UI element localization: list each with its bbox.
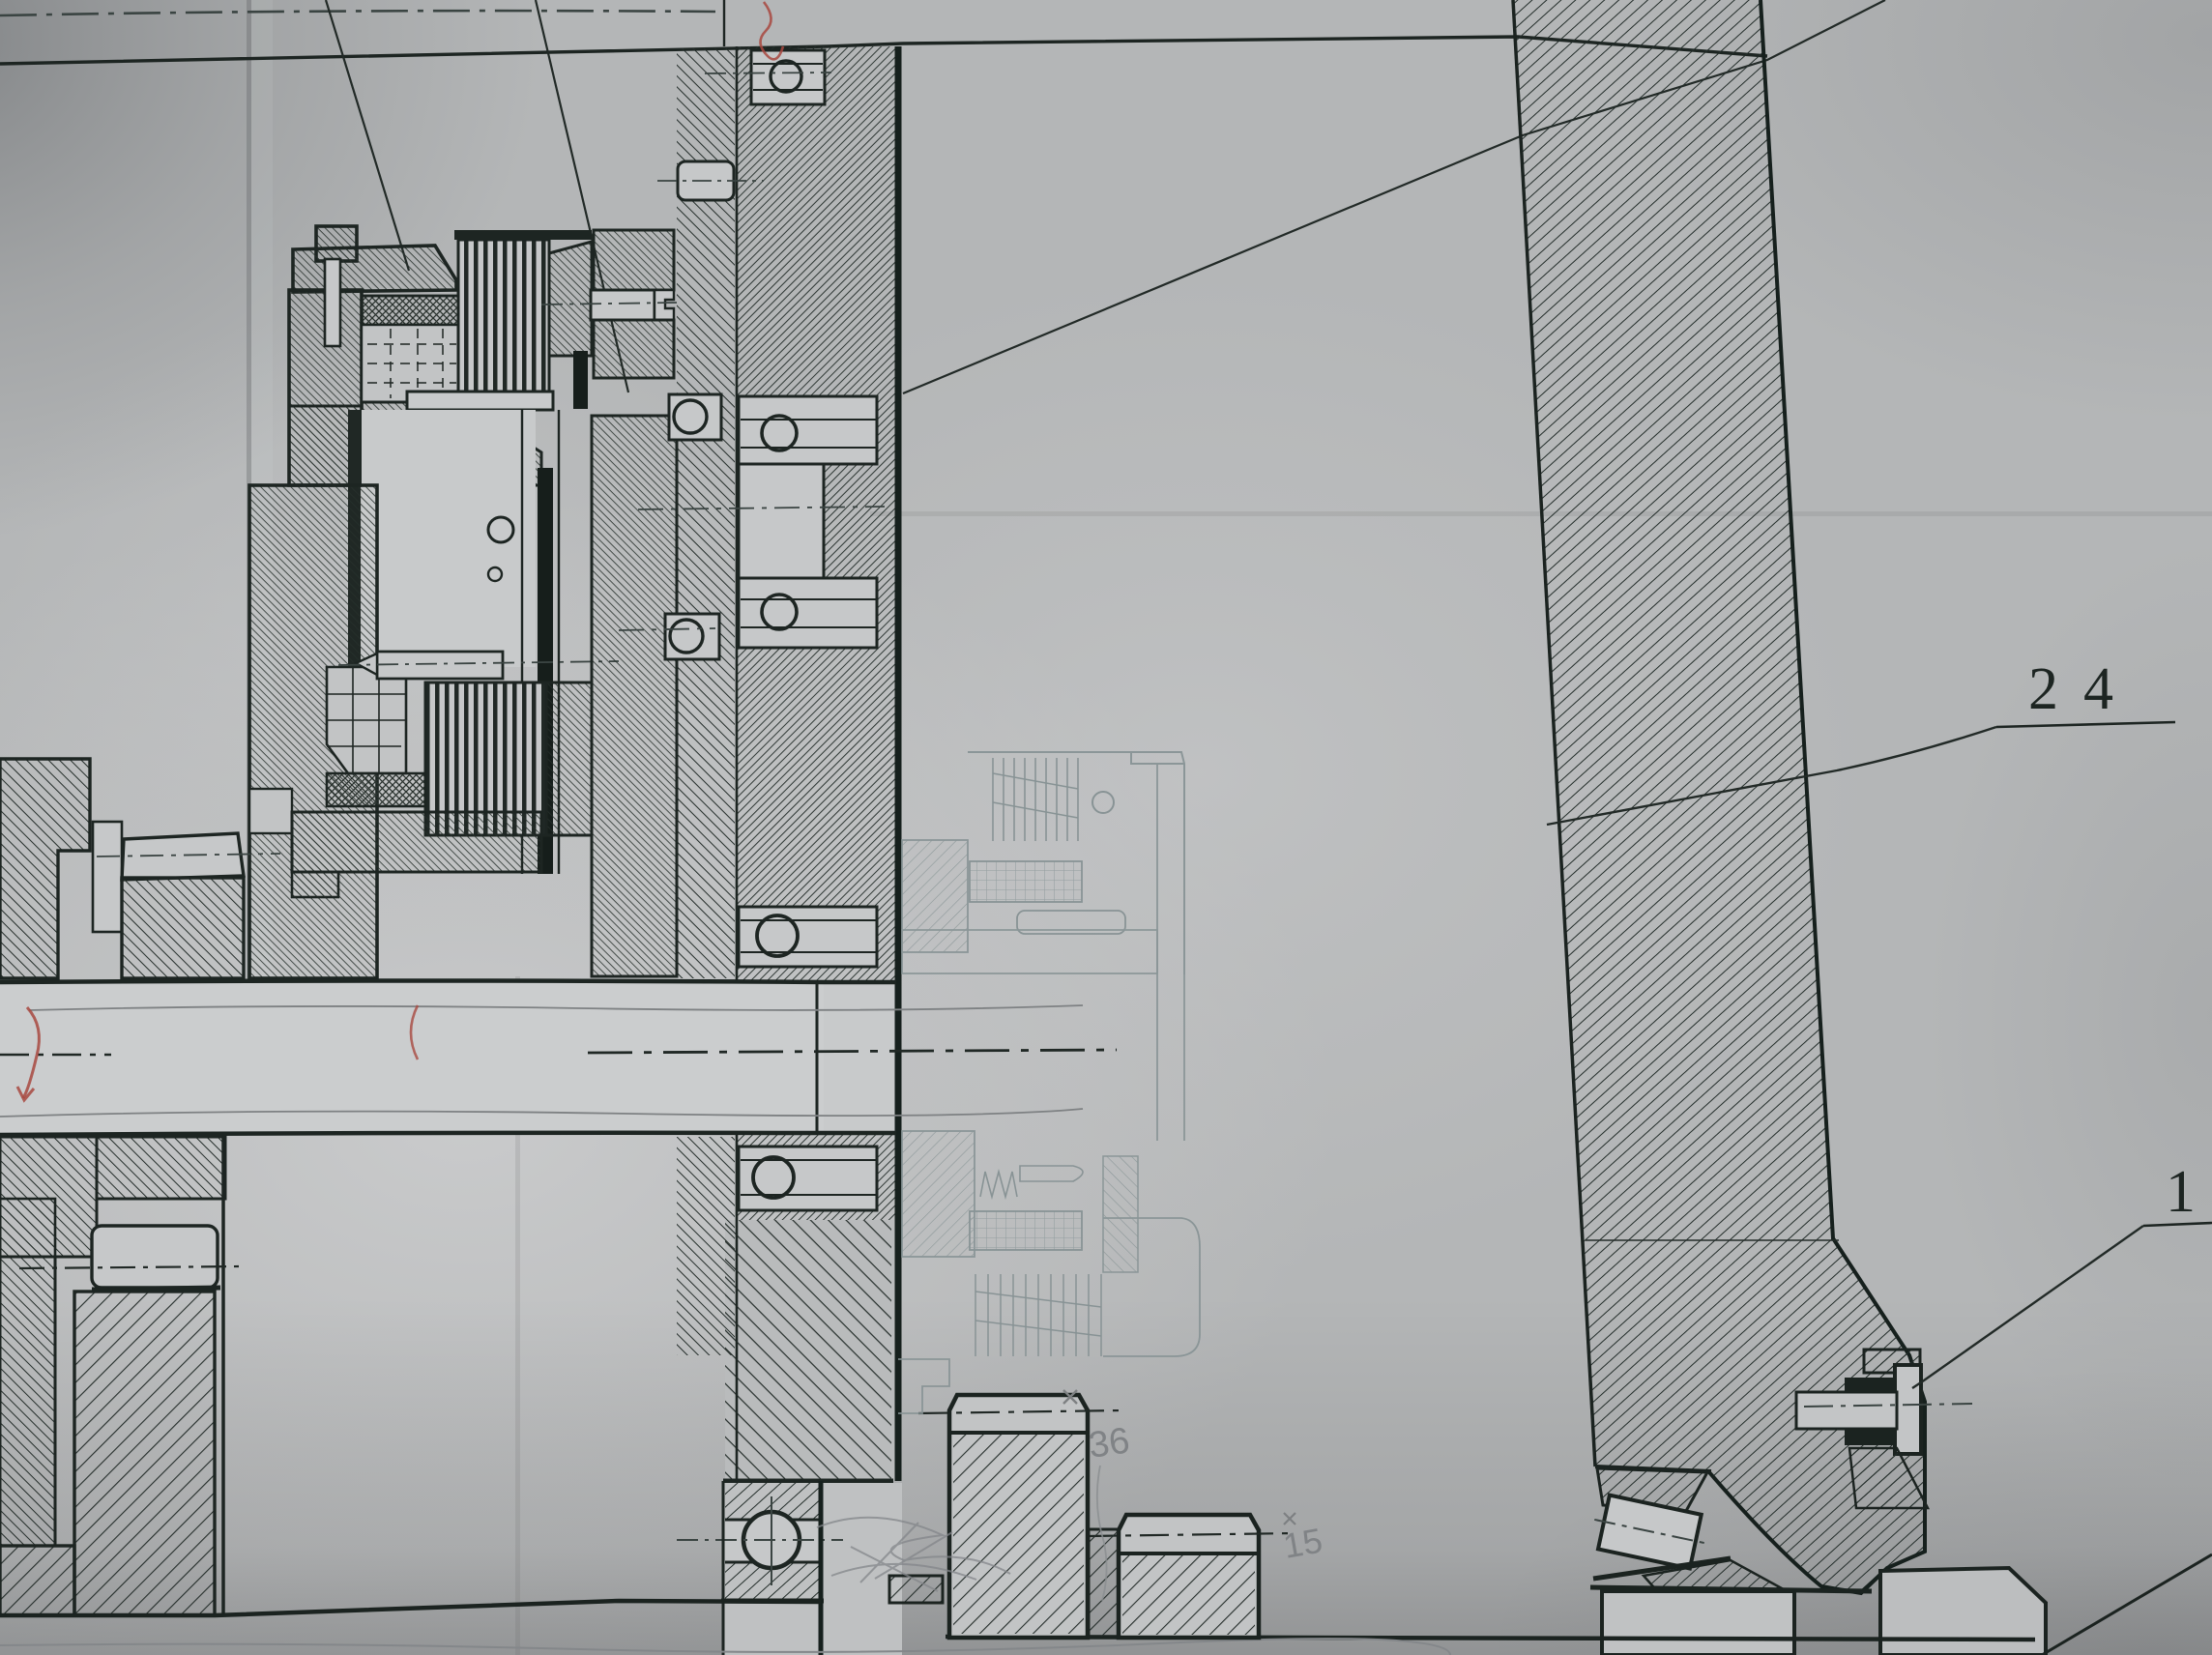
svg-text:15: 15 (1280, 1521, 1325, 1566)
svg-text:36: 36 (1086, 1420, 1132, 1466)
svg-text:24: 24 (2028, 656, 2139, 722)
svg-text:1: 1 (2166, 1159, 2196, 1225)
